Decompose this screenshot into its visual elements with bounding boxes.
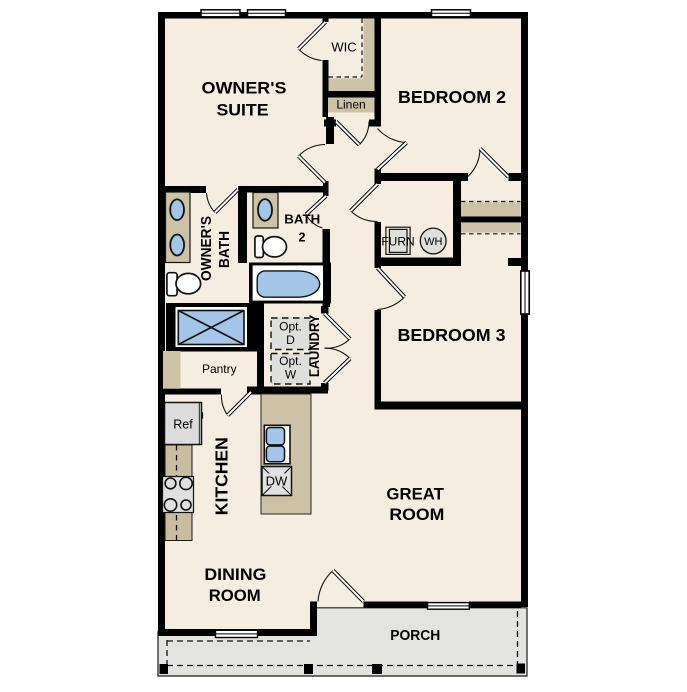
svg-text:BATH: BATH xyxy=(284,213,320,227)
svg-text:BEDROOM 3: BEDROOM 3 xyxy=(398,325,506,345)
svg-text:PORCH: PORCH xyxy=(390,628,440,644)
svg-text:SUITE: SUITE xyxy=(217,102,269,120)
svg-text:BATH: BATH xyxy=(217,231,233,268)
svg-text:OWNER'S: OWNER'S xyxy=(202,80,287,98)
svg-text:BEDROOM 2: BEDROOM 2 xyxy=(398,87,506,107)
svg-text:D: D xyxy=(286,333,295,347)
svg-text:WIC: WIC xyxy=(331,40,356,55)
svg-text:Linen: Linen xyxy=(336,98,365,112)
svg-text:Ref: Ref xyxy=(173,417,193,431)
svg-text:ROOM: ROOM xyxy=(209,586,261,605)
svg-text:2: 2 xyxy=(299,231,306,245)
svg-text:DW: DW xyxy=(266,474,288,489)
svg-text:WH: WH xyxy=(424,236,442,248)
svg-text:Opt.: Opt. xyxy=(279,354,302,368)
svg-text:Opt.: Opt. xyxy=(279,320,302,334)
svg-text:GREAT: GREAT xyxy=(386,486,444,504)
svg-text:OWNER'S: OWNER'S xyxy=(199,216,215,281)
svg-text:DINING: DINING xyxy=(204,565,266,584)
svg-text:LAUNDRY: LAUNDRY xyxy=(307,315,322,378)
svg-text:KITCHEN: KITCHEN xyxy=(212,437,232,515)
svg-text:Pantry: Pantry xyxy=(202,362,237,376)
svg-text:ROOM: ROOM xyxy=(389,506,444,524)
svg-text:W: W xyxy=(285,367,297,381)
svg-text:FURN: FURN xyxy=(381,234,414,248)
